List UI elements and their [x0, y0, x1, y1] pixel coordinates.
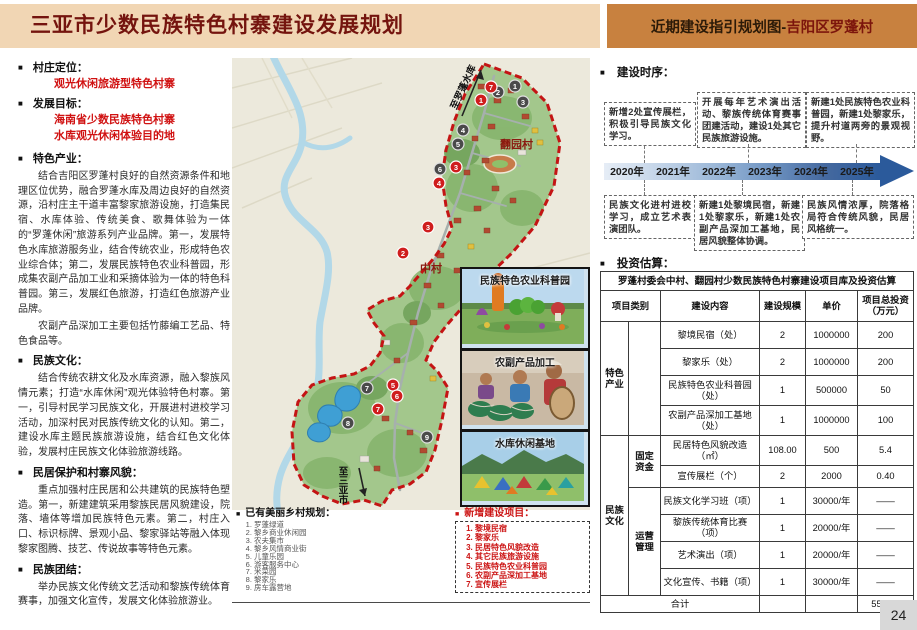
- unit-cell: 1000000: [806, 322, 858, 349]
- empty-cell: [760, 596, 806, 613]
- legend-new-list: 黎境民宿 黎家乐 民居特色风貌改造 其它民族旅游设施 民族特色农业科普园 农副产…: [462, 524, 585, 590]
- content-cell: 宣传展栏（个）: [661, 466, 760, 488]
- content-cell: 民族文化学习班（项）: [661, 488, 760, 515]
- goal-line-1: 海南省少数民族特色村寨: [18, 113, 230, 129]
- bullet-square-icon: ■: [18, 354, 23, 369]
- content-cell: 黎族传统体育比赛（项）: [661, 515, 760, 542]
- legend-item: 黎境民宿: [475, 524, 585, 533]
- timeline-box-bottom-1: 民族文化进村进校学习，成立艺术表演团队。: [604, 195, 696, 239]
- dwelling-paragraph: 重点加强村庄民居和公共建筑的民族特色塑造。第一，新建建筑采用黎族民居风貌建设，院…: [18, 484, 230, 558]
- svg-text:3: 3: [454, 163, 458, 172]
- total-cell: ——: [858, 488, 914, 515]
- timeline-connector: [852, 180, 853, 195]
- svg-text:7: 7: [376, 405, 380, 414]
- left-text-column: ■村庄定位： 观光休闲旅游型特色村寨 ■发展目标： 海南省少数民族特色村寨 水库…: [18, 56, 230, 612]
- content-cell: 黎境民宿（处）: [661, 322, 760, 349]
- bullet-square-icon: ■: [18, 152, 23, 167]
- scale-cell: 1: [760, 488, 806, 515]
- timeline-box-top-1: 新增2处宣传展栏，积极引导民族文化学习。: [604, 102, 696, 146]
- svg-text:8: 8: [346, 419, 350, 428]
- legend-new-title: ■新增建设项目：: [455, 504, 590, 519]
- section-industry: ■特色产业：: [18, 152, 230, 168]
- timeline-box-bottom-3: 民族风情浓厚，院落格局符合传统风貌，民居风格统一。: [802, 195, 914, 239]
- year-label: 2022年: [696, 163, 742, 180]
- legend-item: 米菜园: [254, 568, 451, 576]
- header-subtitle-village: 吉阳区罗蓬村: [786, 16, 873, 37]
- bullet-square-icon: ■: [18, 97, 23, 112]
- total-cell: ——: [858, 569, 914, 596]
- col-header: 建设内容: [661, 291, 760, 322]
- timeline-year-bar: 2020年 2021年 2022年 2023年 2024年 2025年: [604, 163, 880, 180]
- section-construction-sequence: ■建设时序：: [600, 64, 674, 80]
- legend-new-box: 黎境民宿 黎家乐 民居特色风貌改造 其它民族旅游设施 民族特色农业科普园 农副产…: [455, 521, 590, 593]
- svg-text:5: 5: [456, 140, 460, 149]
- culture-paragraph: 结合传统农耕文化及水库资源，融入黎族风情元素；打造“水库休闲”观光体验特色村寨。…: [18, 372, 230, 461]
- table-row: 特色产业 黎境民宿（处） 2 1000000 200: [601, 322, 914, 349]
- industry-paragraph-2: 农副产品深加工主要包括竹藤编工艺品、特色食品等。: [18, 320, 230, 350]
- bullet-square-icon: ■: [455, 511, 459, 518]
- table-title: 罗蓬村委会中村、翻园村少数民族特色村寨建设项目库及投资估算: [601, 272, 914, 291]
- col-header: 项目总投资（万元）: [858, 291, 914, 322]
- section-unity: ■民族团结：: [18, 563, 230, 579]
- scale-cell: 1: [760, 569, 806, 596]
- village-label-mid: 中村: [420, 261, 442, 275]
- total-cell: 100: [858, 406, 914, 436]
- bullet-square-icon: ■: [600, 259, 605, 268]
- unit-cell: 500000: [806, 376, 858, 406]
- unit-cell: 30000/年: [806, 569, 858, 596]
- village-position-value: 观光休闲旅游型特色村寨: [18, 77, 230, 93]
- photo-caption: 民族特色农业科普园: [462, 272, 588, 287]
- legend-item: 民族特色农业科普园: [475, 562, 585, 571]
- legend-item: 其它民族旅游设施: [475, 552, 585, 561]
- timeline-box-top-2: 开展每年艺术演出活动、黎族传统体育赛事团建活动，建设1处其它民族旅游设施。: [697, 92, 806, 148]
- investment-table: 罗蓬村委会中村、翻园村少数民族特色村寨建设项目库及投资估算 项目类别 建设内容 …: [600, 271, 914, 613]
- total-label-cell: 合计: [601, 596, 760, 613]
- svg-text:1: 1: [479, 96, 483, 105]
- timeline-connector: [856, 144, 857, 163]
- svg-text:6: 6: [438, 165, 442, 174]
- scale-cell: 2: [760, 466, 806, 488]
- page-number: 24: [880, 600, 917, 630]
- year-label: 2024年: [788, 163, 834, 180]
- timeline-connector: [644, 180, 645, 195]
- unit-cell: 1000000: [806, 406, 858, 436]
- arrow-to-sanya-label: 至三亚市: [337, 466, 349, 505]
- subcategory-cell: 固定资金: [629, 436, 661, 488]
- unit-cell: 500: [806, 436, 858, 466]
- table-header-row: 项目类别 建设内容 建设规模 单价 项目总投资（万元）: [601, 291, 914, 322]
- section-investment-estimate: ■投资估算：: [600, 255, 674, 271]
- legend-item: 黎家乐: [475, 533, 585, 542]
- svg-text:6: 6: [395, 392, 399, 401]
- bullet-square-icon: ■: [18, 466, 23, 481]
- scale-cell: 2: [760, 349, 806, 376]
- timeline-connector: [644, 146, 645, 163]
- year-label: 2021年: [650, 163, 696, 180]
- table-row: 民族文化 固定资金 民居特色风貌改造（㎡） 108.00 500 5.4: [601, 436, 914, 466]
- unity-paragraph: 举办民族文化传统文艺活动和黎族传统体育赛事，加强文化宣传，发展文化体验旅游业。: [18, 581, 230, 611]
- total-cell: ——: [858, 542, 914, 569]
- photo-caption: 农副产品加工: [462, 354, 588, 369]
- total-cell: 200: [858, 322, 914, 349]
- content-cell: 民居特色风貌改造（㎡）: [661, 436, 760, 466]
- bullet-square-icon: ■: [18, 61, 23, 76]
- sports-field: [484, 155, 516, 173]
- timeline-connector: [748, 144, 749, 163]
- timeline-box-bottom-2: 新建1处黎境民宿，新建1处黎家乐，新建1处农副产品深加工基地，民居风貌整体协调。: [694, 195, 805, 251]
- unit-cell: 20000/年: [806, 542, 858, 569]
- legend-existing-list: 罗蓬绿道 黎乡商业休闲园 农夫集市 黎乡风情商业街 儿童乐园 游客服务中心 米菜…: [240, 521, 451, 592]
- content-cell: 艺术演出（项）: [661, 542, 760, 569]
- section-village-position: ■村庄定位：: [18, 61, 230, 77]
- year-label: 2023年: [742, 163, 788, 180]
- total-cell: 5.4: [858, 436, 914, 466]
- svg-text:3: 3: [521, 98, 525, 107]
- timeline-box-top-3: 新建1处民族特色农业科普园，新建1处黎家乐，提升村道两旁的景观视野。: [806, 92, 915, 148]
- content-cell: 民族特色农业科普园（处）: [661, 376, 760, 406]
- svg-text:7: 7: [489, 83, 493, 92]
- total-cell: 50: [858, 376, 914, 406]
- scale-cell: 1: [760, 376, 806, 406]
- header-subtitle-prefix: 近期建设指引规划图-: [651, 16, 786, 37]
- scale-cell: 1: [760, 406, 806, 436]
- category-cell: 特色产业: [601, 322, 629, 436]
- col-header: 单价: [806, 291, 858, 322]
- scale-cell: 1: [760, 515, 806, 542]
- legend-divider: [232, 602, 590, 603]
- photo-caption: 水库休闲基地: [462, 435, 588, 450]
- legend-item: 民居特色风貌改造: [475, 543, 585, 552]
- svg-text:1: 1: [513, 82, 517, 91]
- slide-page: 三亚市少数民族特色村寨建设发展规划 近期建设指引规划图-吉阳区罗蓬村 ■村庄定位…: [0, 0, 917, 630]
- total-cell: 200: [858, 349, 914, 376]
- unit-cell: 2000: [806, 466, 858, 488]
- bullet-square-icon: ■: [18, 563, 23, 578]
- village-label-north: 翻园村: [500, 137, 533, 151]
- photo-agriculture-science-garden: 民族特色农业科普园: [460, 267, 590, 350]
- section-culture: ■民族文化：: [18, 354, 230, 370]
- unit-cell: 1000000: [806, 349, 858, 376]
- unit-cell: 30000/年: [806, 488, 858, 515]
- legend-item: 房车露营地: [254, 584, 451, 592]
- scale-cell: 1: [760, 542, 806, 569]
- legend-item: 游客服务中心: [254, 561, 451, 569]
- svg-text:7: 7: [365, 384, 369, 393]
- category-cell: 民族文化: [601, 436, 629, 596]
- svg-text:9: 9: [425, 433, 429, 442]
- header-title-band: 三亚市少数民族特色村寨建设发展规划: [0, 4, 600, 48]
- industry-paragraph-1: 结合吉阳区罗蓬村良好的自然资源条件和地理区位优势，融合罗蓬水库及周边良好的自然资…: [18, 170, 230, 318]
- legend-item: 宣传展栏: [475, 580, 585, 589]
- unit-cell: 20000/年: [806, 515, 858, 542]
- col-header: 建设规模: [760, 291, 806, 322]
- section-dwelling-protection: ■民居保护和村寨风貌：: [18, 466, 230, 482]
- col-header: 项目类别: [601, 291, 661, 322]
- total-cell: 0.40: [858, 466, 914, 488]
- total-cell: ——: [858, 515, 914, 542]
- scale-cell: 108.00: [760, 436, 806, 466]
- legend-existing-title: ■已有美丽乡村规划：: [236, 504, 451, 519]
- svg-text:5: 5: [391, 381, 395, 390]
- timeline-arrowhead-icon: [880, 155, 914, 187]
- photo-product-processing: 农副产品加工: [460, 349, 590, 431]
- table-total-row: 合计 555.80: [601, 596, 914, 613]
- content-cell: 黎家乐（处）: [661, 349, 760, 376]
- bullet-square-icon: ■: [236, 511, 240, 518]
- content-cell: 农副产品深加工基地（处）: [661, 406, 760, 436]
- year-label: 2025年: [834, 163, 880, 180]
- goal-line-2: 水库观光休闲体验目的地: [18, 129, 230, 145]
- table-row: 运营管理 民族文化学习班（项） 1 30000/年 ——: [601, 488, 914, 515]
- bullet-square-icon: ■: [600, 68, 605, 77]
- subcategory-cell: [629, 322, 661, 436]
- page-title: 三亚市少数民族特色村寨建设发展规划: [30, 4, 404, 48]
- section-development-goal: ■发展目标：: [18, 97, 230, 113]
- scale-cell: 2: [760, 322, 806, 349]
- content-cell: 文化宣传、书籍（项）: [661, 569, 760, 596]
- timeline-connector: [742, 180, 743, 195]
- subcategory-cell: 运营管理: [629, 488, 661, 596]
- svg-text:2: 2: [401, 249, 405, 258]
- year-label: 2020年: [604, 163, 650, 180]
- svg-text:3: 3: [426, 223, 430, 232]
- photo-reservoir-leisure-base: 水库休闲基地: [460, 430, 590, 507]
- header-subtitle-band: 近期建设指引规划图-吉阳区罗蓬村: [607, 4, 917, 48]
- empty-cell: [806, 596, 858, 613]
- legend-new-projects: ■新增建设项目： 黎境民宿 黎家乐 民居特色风貌改造 其它民族旅游设施 民族特色…: [455, 504, 590, 593]
- legend-existing: ■已有美丽乡村规划： 罗蓬绿道 黎乡商业休闲园 农夫集市 黎乡风情商业街 儿童乐…: [236, 504, 451, 592]
